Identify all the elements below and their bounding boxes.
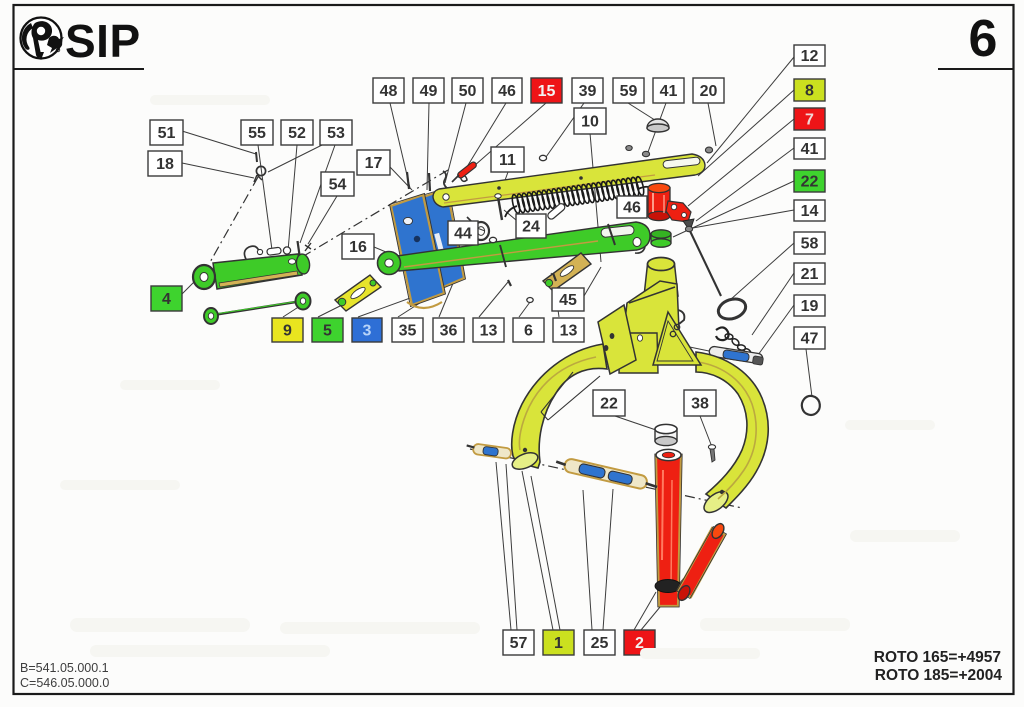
- svg-text:41: 41: [660, 83, 678, 100]
- svg-text:49: 49: [420, 83, 438, 100]
- svg-text:B=541.05.000.1: B=541.05.000.1: [20, 661, 109, 675]
- svg-text:18: 18: [156, 156, 174, 173]
- svg-text:58: 58: [801, 236, 819, 253]
- svg-text:1: 1: [554, 635, 563, 652]
- svg-text:39: 39: [579, 83, 597, 100]
- svg-text:45: 45: [559, 292, 577, 309]
- svg-text:22: 22: [801, 174, 819, 191]
- svg-text:55: 55: [248, 125, 266, 142]
- svg-text:ROTO 185=+2004: ROTO 185=+2004: [875, 667, 1003, 684]
- svg-text:13: 13: [480, 323, 498, 340]
- svg-text:21: 21: [801, 266, 819, 283]
- svg-text:9: 9: [283, 323, 292, 340]
- svg-text:44: 44: [454, 226, 472, 243]
- svg-text:5: 5: [323, 323, 332, 340]
- svg-text:25: 25: [591, 635, 609, 652]
- svg-text:46: 46: [623, 200, 641, 217]
- svg-text:41: 41: [801, 141, 819, 158]
- svg-text:54: 54: [329, 177, 347, 194]
- svg-text:47: 47: [801, 331, 819, 348]
- svg-text:SIP: SIP: [65, 15, 141, 67]
- svg-text:51: 51: [158, 125, 176, 142]
- svg-text:46: 46: [498, 83, 516, 100]
- svg-text:35: 35: [399, 323, 417, 340]
- svg-text:19: 19: [801, 298, 819, 315]
- svg-text:12: 12: [801, 48, 819, 65]
- svg-text:6: 6: [524, 323, 533, 340]
- svg-text:3: 3: [363, 323, 372, 340]
- svg-text:ROTO 165=+4957: ROTO 165=+4957: [874, 649, 1001, 666]
- svg-text:24: 24: [522, 219, 540, 236]
- svg-text:20: 20: [700, 83, 718, 100]
- svg-text:50: 50: [459, 83, 477, 100]
- svg-text:53: 53: [327, 125, 345, 142]
- svg-text:11: 11: [499, 152, 516, 169]
- svg-text:14: 14: [801, 203, 819, 220]
- svg-text:22: 22: [600, 396, 618, 413]
- svg-text:10: 10: [581, 114, 599, 131]
- svg-text:8: 8: [805, 83, 814, 100]
- svg-text:52: 52: [288, 125, 306, 142]
- svg-text:59: 59: [620, 83, 638, 100]
- svg-text:48: 48: [380, 83, 398, 100]
- svg-text:38: 38: [691, 396, 709, 413]
- svg-text:17: 17: [365, 155, 383, 172]
- svg-text:16: 16: [349, 239, 367, 256]
- svg-text:15: 15: [538, 83, 556, 100]
- svg-text:13: 13: [560, 323, 578, 340]
- svg-text:4: 4: [162, 291, 171, 308]
- svg-text:57: 57: [510, 635, 528, 652]
- svg-text:C=546.05.000.0: C=546.05.000.0: [20, 676, 109, 690]
- svg-text:36: 36: [440, 323, 458, 340]
- svg-text:6: 6: [969, 10, 998, 68]
- svg-text:7: 7: [805, 112, 814, 129]
